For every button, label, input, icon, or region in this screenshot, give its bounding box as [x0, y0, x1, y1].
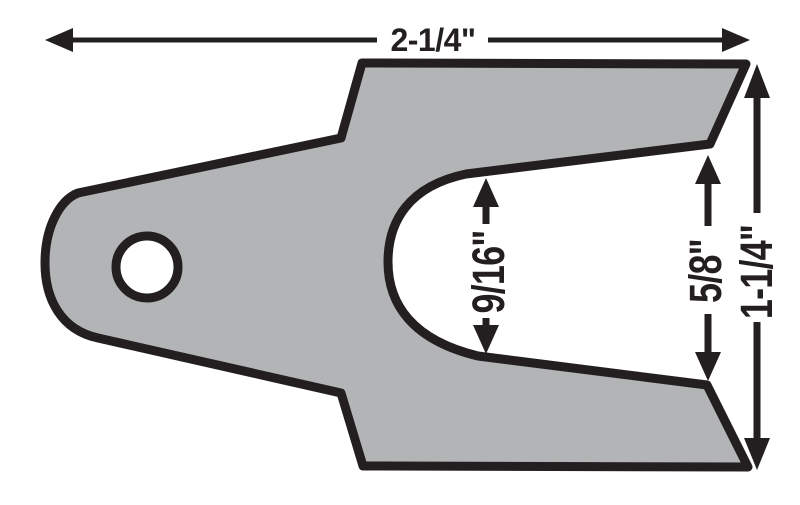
dimension-line-top	[754, 95, 761, 213]
dimension-line-bottom	[705, 314, 712, 354]
technical-drawing-canvas: 2-1/4" 9/16" 5/8" 1-1/4"	[0, 0, 800, 505]
shim-part	[45, 63, 748, 467]
dimension-overall-width: 2-1/4"	[45, 22, 750, 58]
prong-gap-label: 5/8"	[680, 239, 731, 303]
dimension-prong-gap: 5/8"	[680, 155, 731, 381]
arrow-right-icon	[722, 28, 750, 52]
dimension-line-top	[705, 181, 712, 226]
arrow-left-icon	[45, 28, 73, 52]
dimension-line-bottom	[754, 322, 761, 441]
arrow-down-icon	[473, 325, 499, 354]
dimension-slot-width: 9/16"	[463, 178, 514, 354]
arrow-up-icon	[695, 155, 721, 184]
mounting-hole	[116, 236, 178, 298]
dimension-line-top	[483, 204, 490, 224]
dimension-line-right	[488, 38, 724, 43]
shim-technical-drawing: 2-1/4" 9/16" 5/8" 1-1/4"	[0, 0, 800, 505]
dimension-line-left	[71, 38, 377, 43]
overall-height-label: 1-1/4"	[731, 225, 782, 319]
overall-width-label: 2-1/4"	[390, 22, 475, 58]
slot-width-label: 9/16"	[463, 230, 514, 313]
dimension-overall-height: 1-1/4"	[731, 64, 782, 470]
arrow-down-icon	[695, 352, 721, 381]
arrow-up-icon	[473, 178, 499, 207]
